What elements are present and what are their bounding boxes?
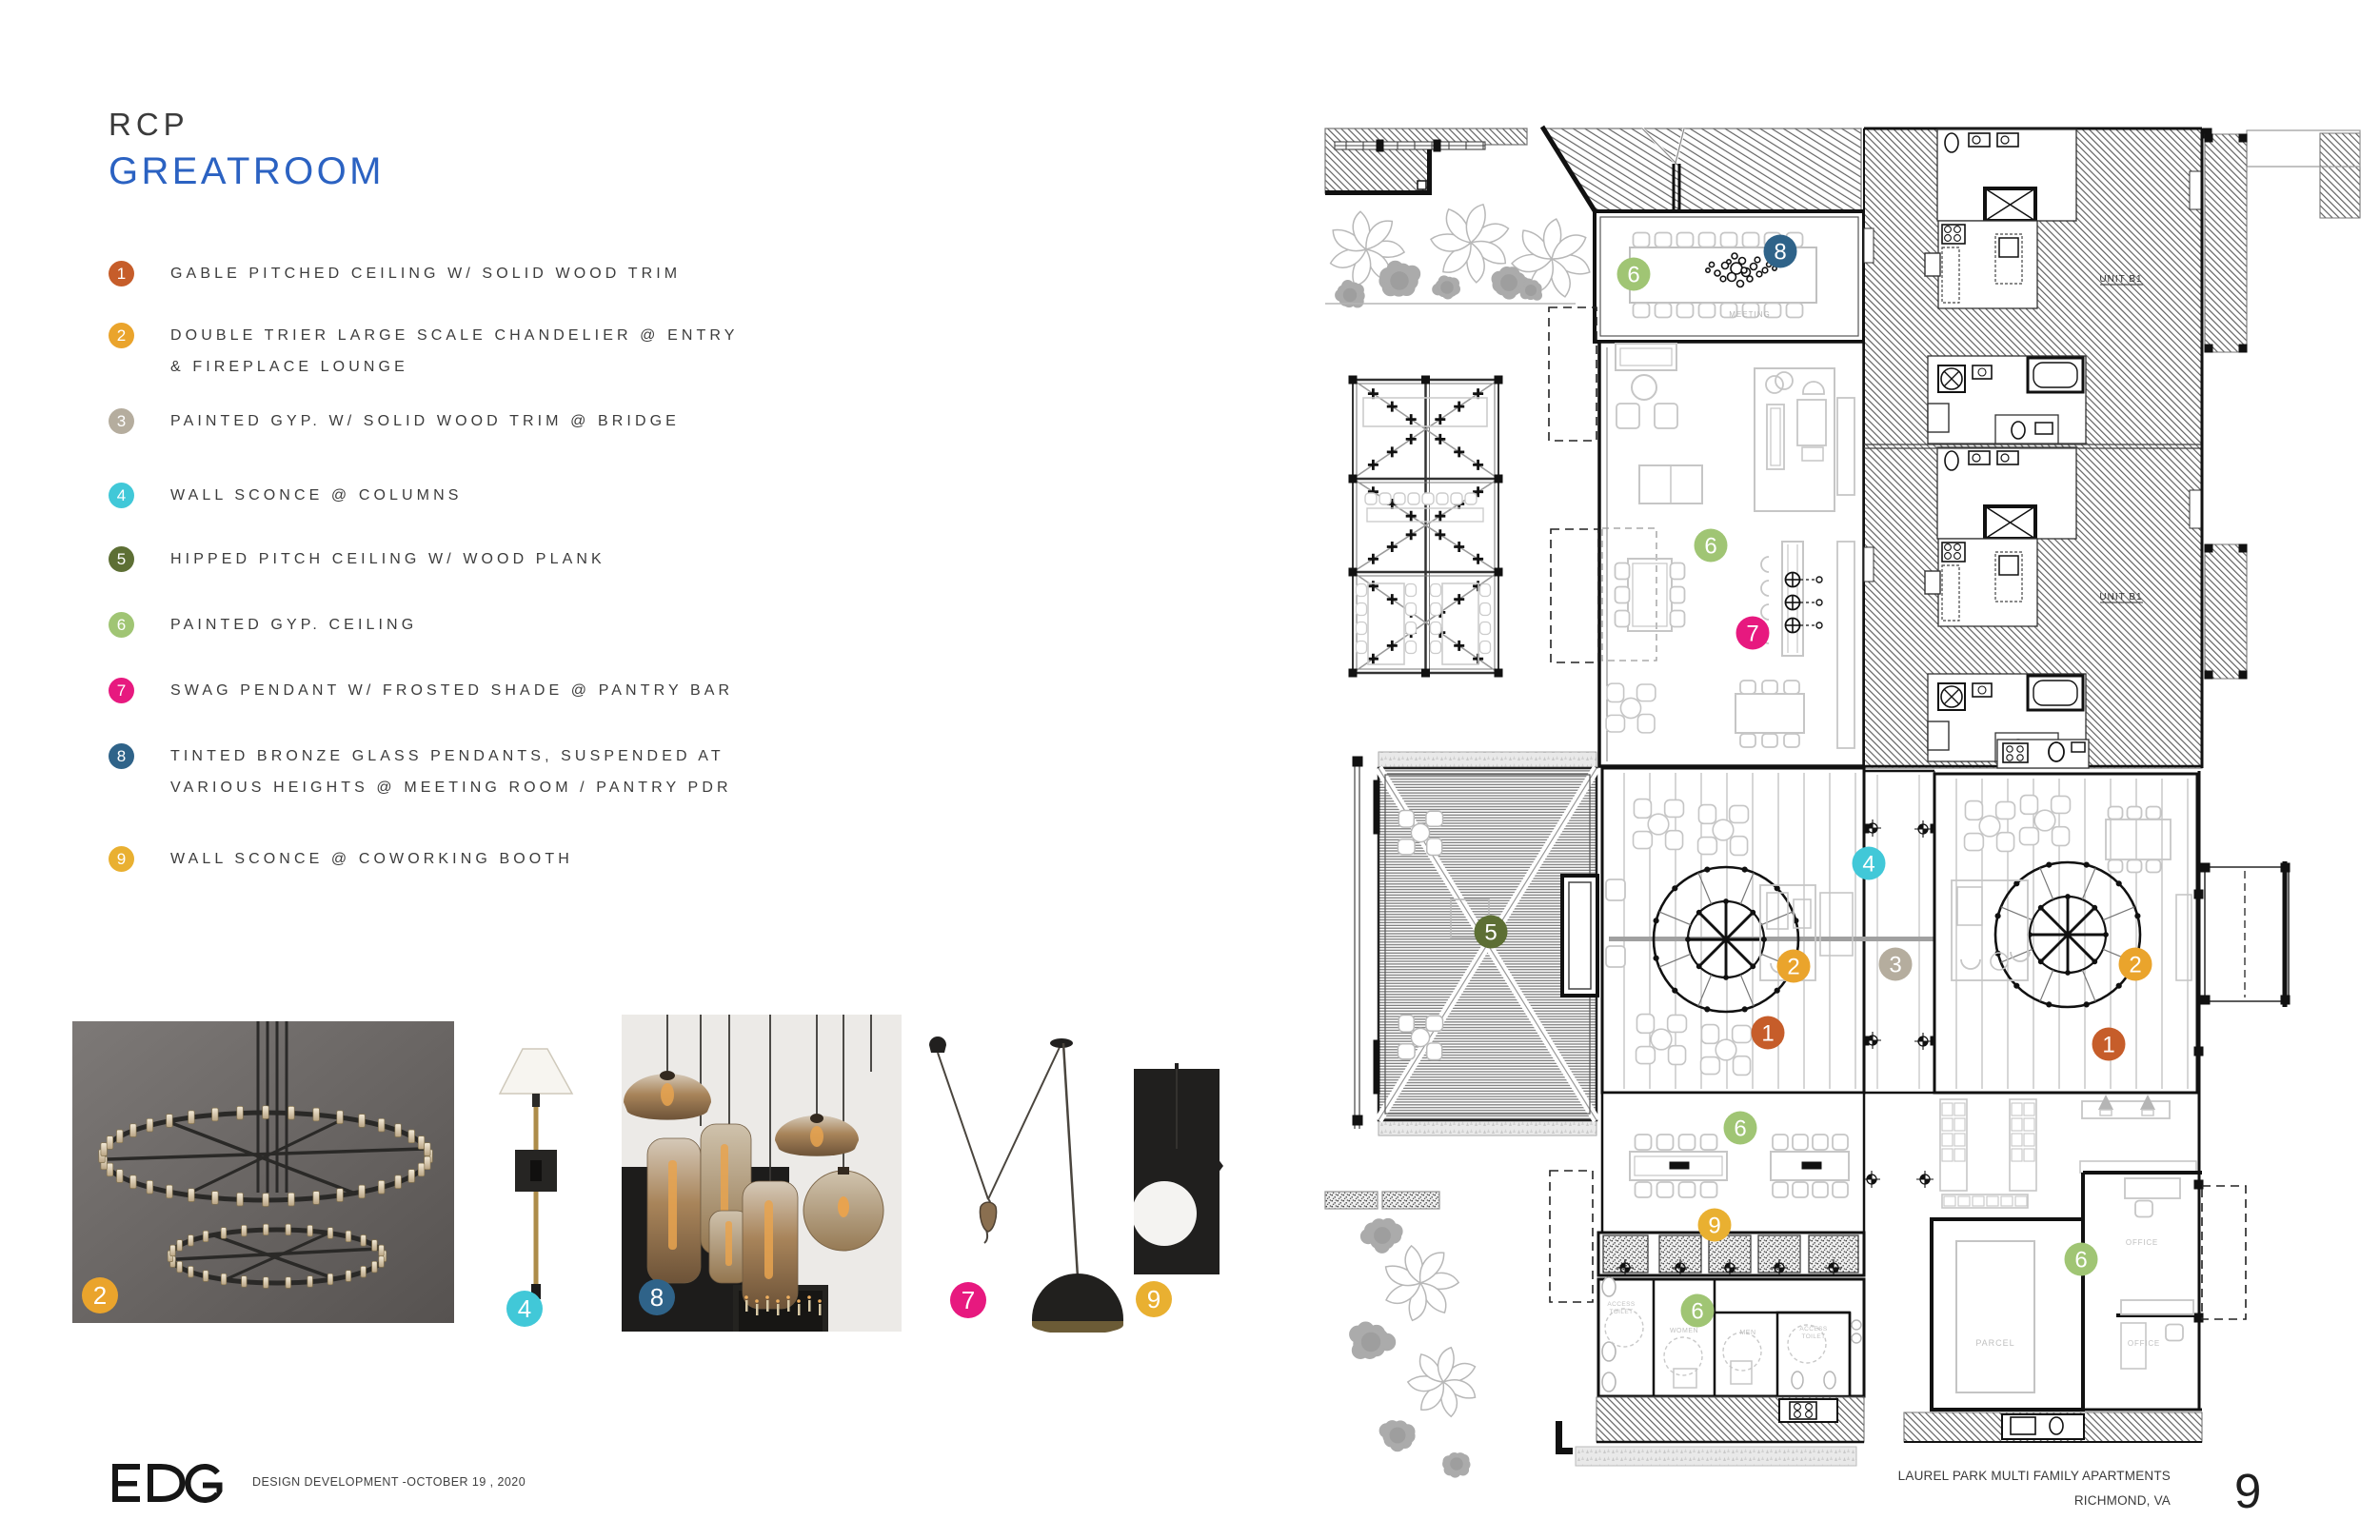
svg-text:8: 8 — [650, 1283, 664, 1312]
svg-text:6: 6 — [1704, 533, 1716, 559]
svg-text:UNIT B1: UNIT B1 — [2099, 592, 2142, 602]
svg-text:6: 6 — [2074, 1247, 2087, 1273]
svg-text:3: 3 — [1889, 952, 1901, 977]
svg-text:WOMEN: WOMEN — [1670, 1328, 1698, 1334]
svg-text:MEN: MEN — [1739, 1330, 1755, 1336]
svg-text:ACCESS: ACCESS — [1607, 1301, 1635, 1308]
svg-text:OFFICE: OFFICE — [2128, 1339, 2160, 1348]
svg-text:UNIT B1: UNIT B1 — [2099, 274, 2142, 285]
svg-text:7: 7 — [1746, 621, 1758, 646]
svg-text:MEETING: MEETING — [1729, 310, 1770, 319]
svg-text:ACCESS: ACCESS — [1799, 1326, 1827, 1333]
svg-text:1: 1 — [2102, 1032, 2114, 1057]
svg-text:8: 8 — [1774, 239, 1786, 265]
svg-text:4: 4 — [518, 1294, 531, 1323]
svg-text:PARCEL: PARCEL — [1975, 1338, 2014, 1348]
svg-text:5: 5 — [1484, 919, 1497, 945]
svg-text:4: 4 — [1862, 851, 1874, 877]
svg-text:2: 2 — [1787, 954, 1799, 979]
svg-text:6: 6 — [1734, 1116, 1746, 1141]
svg-text:OFFICE: OFFICE — [2126, 1238, 2158, 1247]
svg-text:2: 2 — [2129, 952, 2141, 977]
svg-text:TOILET: TOILET — [1801, 1333, 1825, 1340]
svg-text:7: 7 — [962, 1286, 975, 1314]
svg-text:9: 9 — [1147, 1285, 1160, 1313]
svg-text:9: 9 — [1708, 1213, 1720, 1238]
svg-text:2: 2 — [93, 1281, 107, 1310]
svg-text:1: 1 — [1761, 1020, 1774, 1046]
svg-text:6: 6 — [1691, 1298, 1703, 1324]
svg-text:TOILET: TOILET — [1609, 1309, 1633, 1315]
svg-text:6: 6 — [1627, 262, 1639, 287]
